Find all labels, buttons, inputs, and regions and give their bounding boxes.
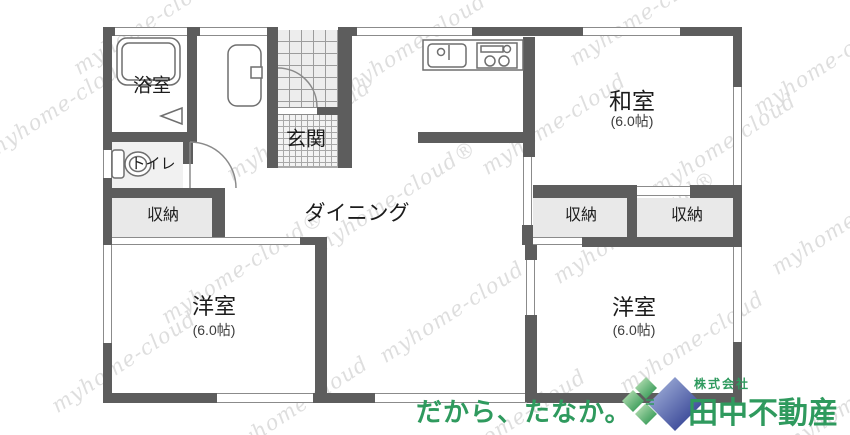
room-size-japanese-room: (6.0帖) [611,111,654,131]
room-label-storage-left: 収納 [147,201,179,225]
room-label-western-room-right: 洋室 [612,290,656,322]
floor-plan: myhome-cloud myhome-cloud® myhome-cloud … [0,0,850,435]
door-arc [190,142,236,188]
room-label-dining: ダイニング [305,197,410,227]
room-label-bath: 浴室 [133,71,171,98]
door-arc [278,68,317,107]
room-label-entrance: 玄関 [286,123,326,152]
folding-door-icon [161,108,182,124]
fixtures-layer [0,0,850,435]
room-size-western-room-left: (6.0帖) [193,320,236,340]
toilet-icon [112,150,124,178]
room-label-toilet: トイレ [130,153,175,174]
room-label-storage-right: 収納 [671,201,703,225]
room-label-storage-mid: 収納 [565,201,597,225]
brand-slogan: だから、たなか。 [416,392,631,429]
room-label-western-room-left: 洋室 [192,289,236,321]
brand-company-name: 田中不動産 [688,388,838,432]
room-size-western-room-right: (6.0帖) [613,320,656,340]
